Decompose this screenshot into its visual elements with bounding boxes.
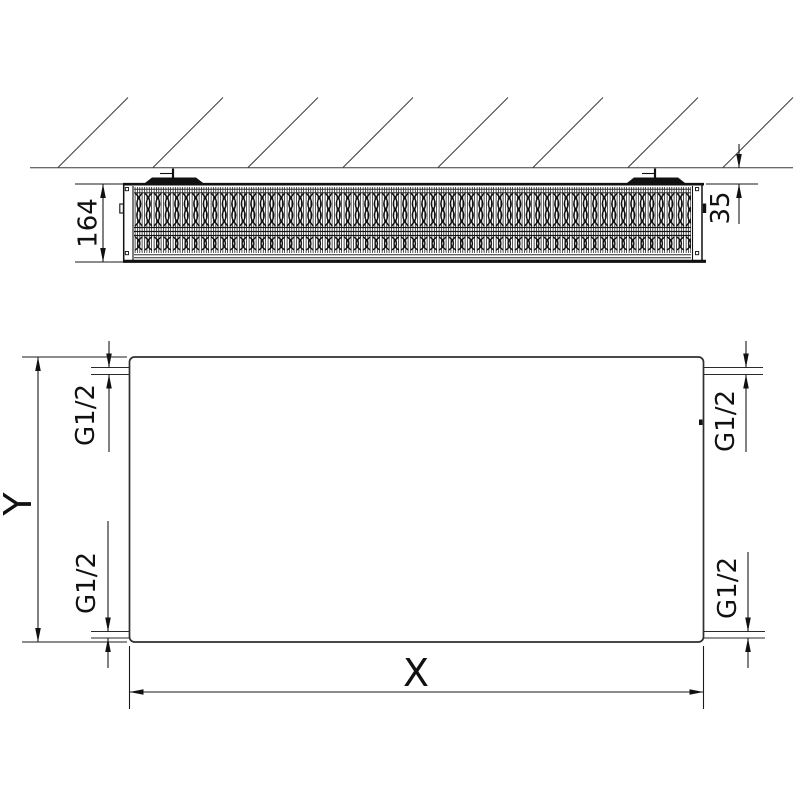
- arrow-up-icon: [745, 638, 751, 652]
- width-value: X: [403, 651, 429, 695]
- arrow-down-icon: [736, 154, 742, 168]
- convector-fins: [134, 187, 691, 253]
- arrow-down-icon: [745, 618, 751, 632]
- thread-size-label: G1/2: [72, 552, 102, 614]
- end-cap-right: [693, 184, 707, 261]
- arrow-right-icon: [690, 689, 704, 695]
- connection-stub-top-left: [91, 368, 130, 375]
- arrow-up-icon: [35, 357, 41, 371]
- arrow-down-icon: [35, 628, 41, 642]
- thread-size-label: G1/2: [713, 557, 743, 619]
- arrow-left-icon: [130, 689, 144, 695]
- air-vent-tab-left: [120, 204, 124, 213]
- arrow-down-icon: [105, 618, 111, 632]
- connection-stub-top-right: [704, 368, 764, 375]
- radiator-technical-drawing: 164 35: [0, 0, 800, 800]
- dimension-g12-top-right: G1/2: [711, 341, 749, 452]
- wall-hatching: [30, 98, 793, 168]
- end-cap-left: [120, 184, 133, 261]
- mounting-bracket-left: [144, 169, 204, 184]
- arrow-up-icon: [106, 375, 112, 389]
- arrow-down-icon: [100, 248, 106, 262]
- mounting-bracket-right: [626, 169, 686, 184]
- arrow-up-icon: [743, 375, 749, 389]
- radiator-section: [120, 184, 706, 261]
- arrow-down-icon: [106, 354, 112, 368]
- dimension-width: X: [130, 646, 704, 709]
- connection-stub-bottom-right: [704, 632, 766, 639]
- radiator-panel-outline: [130, 357, 704, 642]
- dimension-wall-distance: 35: [706, 144, 758, 225]
- thread-size-label: G1/2: [71, 384, 101, 446]
- top-view: 164 35: [30, 98, 793, 263]
- dimension-depth: 164: [74, 184, 124, 262]
- dimension-g12-bottom-right: G1/2: [713, 552, 751, 668]
- side-nub-right: [699, 420, 703, 426]
- dimension-g12-top-left: G1/2: [71, 341, 112, 452]
- arrow-down-icon: [743, 354, 749, 368]
- dimension-g12-bottom-left: G1/2: [72, 521, 111, 668]
- arrow-up-icon: [100, 184, 106, 198]
- height-value: Y: [0, 492, 40, 517]
- arrow-up-icon: [105, 638, 111, 652]
- connection-stub-bottom-left: [91, 632, 130, 639]
- arrow-up-icon: [736, 184, 742, 198]
- depth-value: 164: [74, 198, 104, 248]
- wall-distance-value: 35: [706, 191, 736, 224]
- thread-size-label: G1/2: [711, 390, 741, 452]
- front-view: G1/2 G1/2 G1/2 G1/2: [0, 341, 765, 709]
